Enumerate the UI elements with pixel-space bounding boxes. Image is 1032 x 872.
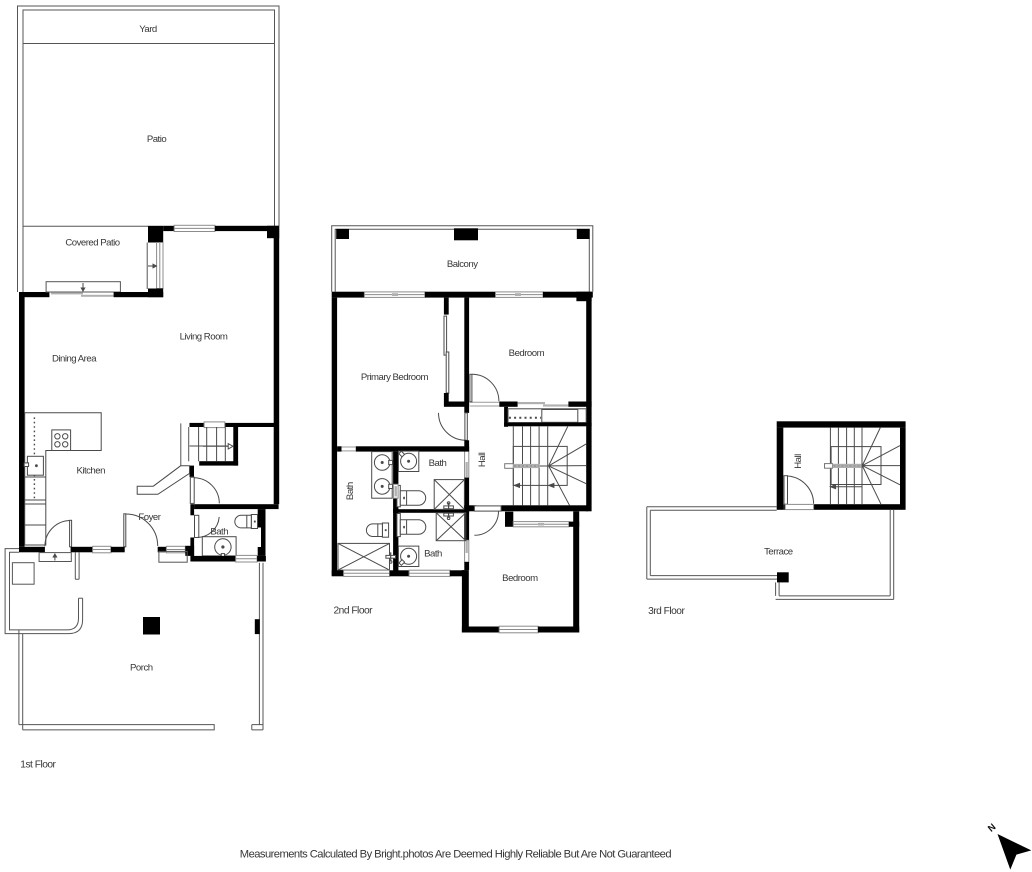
svg-text:2nd Floor: 2nd Floor <box>334 606 374 617</box>
svg-text:Bedroom: Bedroom <box>509 348 545 359</box>
svg-text:Yard: Yard <box>139 24 157 35</box>
svg-text:3rd Floor: 3rd Floor <box>648 606 685 617</box>
svg-text:Bath: Bath <box>424 548 442 559</box>
svg-text:Kitchen: Kitchen <box>76 466 105 477</box>
svg-text:Bedroom: Bedroom <box>502 573 538 584</box>
svg-text:Balcony: Balcony <box>447 259 478 270</box>
svg-text:Hall: Hall <box>793 454 804 469</box>
svg-text:Porch: Porch <box>130 663 153 674</box>
svg-text:Bath: Bath <box>429 458 447 469</box>
svg-text:Primary Bedroom: Primary Bedroom <box>361 372 429 383</box>
svg-text:Dining Area: Dining Area <box>52 354 97 365</box>
svg-text:Terrace: Terrace <box>764 547 793 558</box>
svg-text:Foyer: Foyer <box>138 512 161 523</box>
svg-text:Hall: Hall <box>477 452 488 467</box>
svg-text:Bath: Bath <box>210 527 228 538</box>
svg-text:1st Floor: 1st Floor <box>20 760 56 771</box>
svg-text:Covered Patio: Covered Patio <box>65 238 119 249</box>
svg-text:Bath: Bath <box>345 482 356 500</box>
svg-text:Measurements Calculated By Bri: Measurements Calculated By Bright.photos… <box>240 849 672 861</box>
svg-text:Patio: Patio <box>147 134 167 145</box>
svg-text:Living Room: Living Room <box>180 332 228 343</box>
